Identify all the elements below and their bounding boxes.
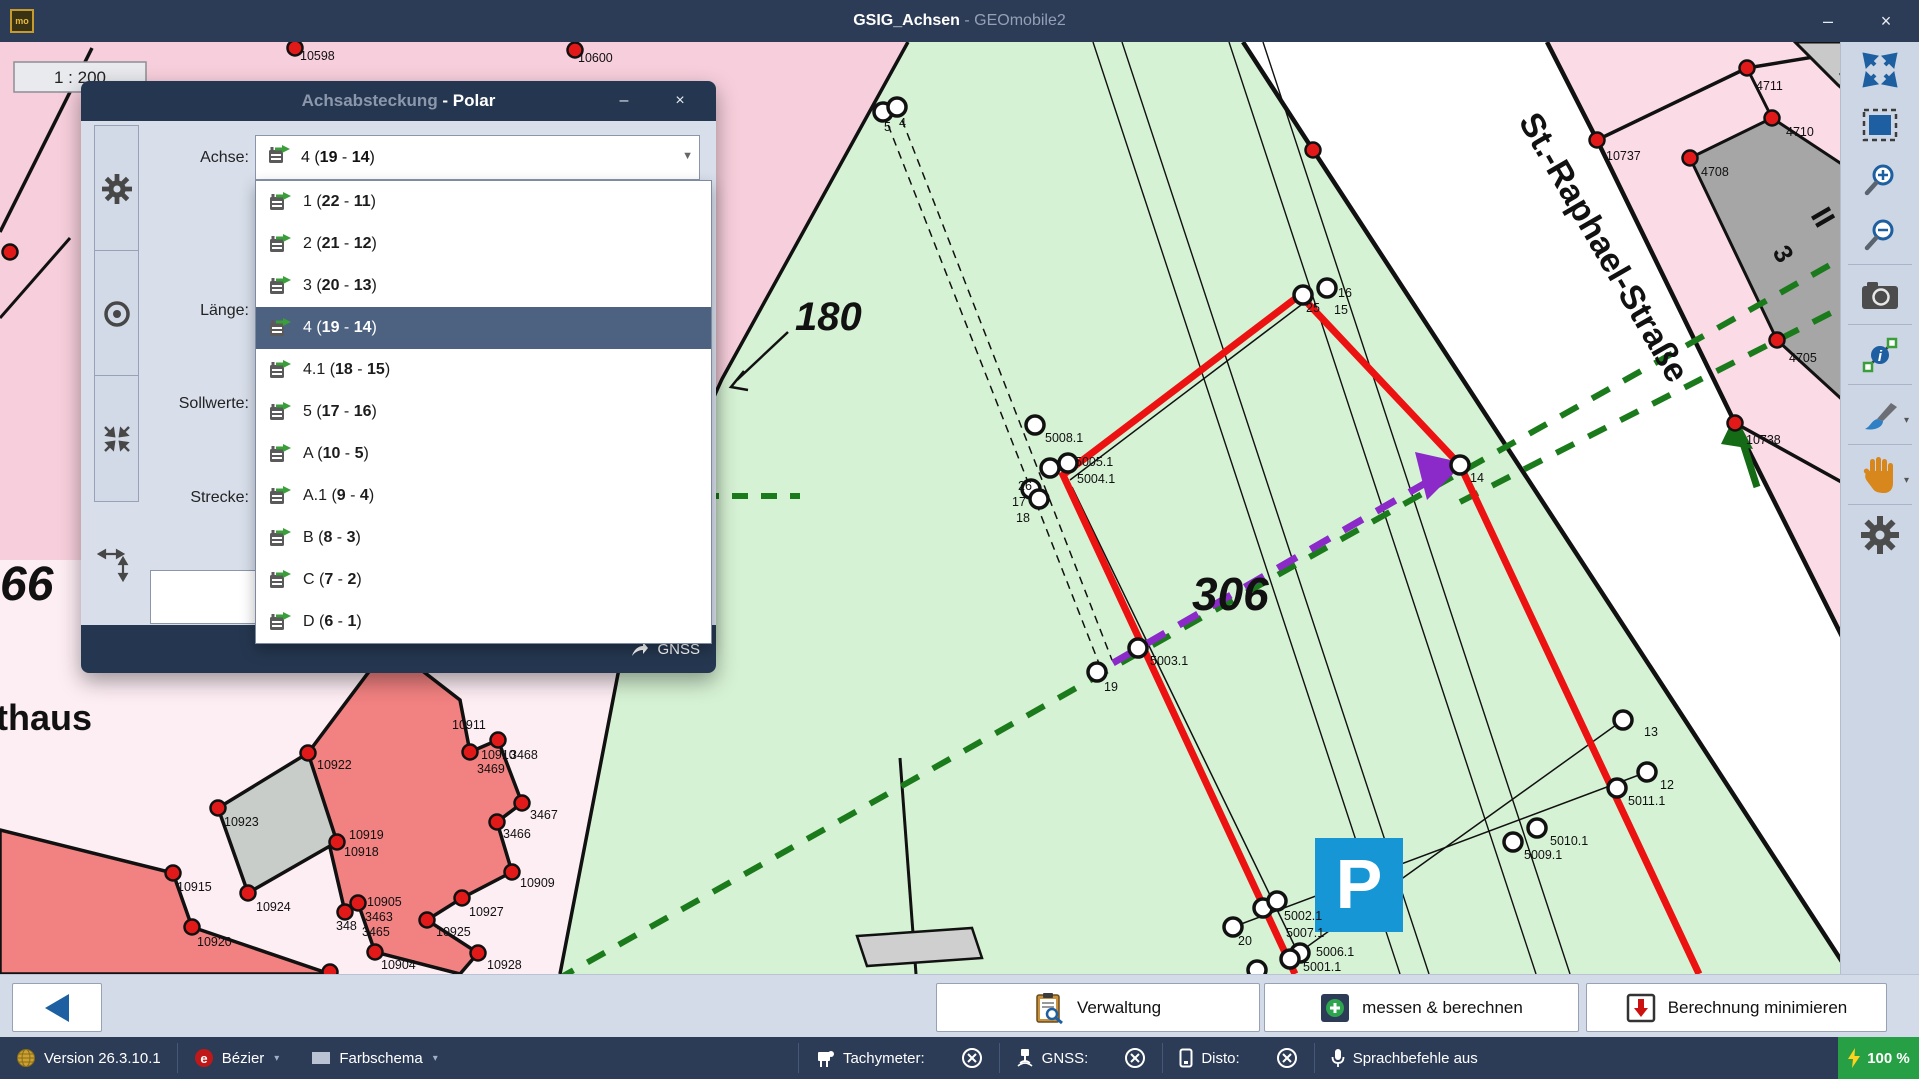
map-point-white[interactable] <box>1268 892 1286 910</box>
map-point-red[interactable] <box>330 835 345 850</box>
selection-rectangle-icon <box>1862 108 1898 142</box>
map-point-red[interactable] <box>463 745 478 760</box>
map-point-red[interactable] <box>455 891 470 906</box>
window-minimize-button[interactable]: – <box>1805 0 1851 42</box>
pan-dropdown-caret: ▾ <box>1904 475 1909 486</box>
axis-icon <box>269 360 292 380</box>
camera-icon <box>1861 280 1899 310</box>
map-point-label: 3463 <box>365 910 393 924</box>
disto-label: Disto: <box>1201 1050 1239 1067</box>
dialog-settings-button[interactable] <box>94 125 139 252</box>
map-point-label: 20 <box>1238 934 1252 948</box>
axis-icon <box>269 444 292 464</box>
achse-combobox[interactable]: 4 (19 - 14) ▼ <box>255 135 700 180</box>
map-point-label: 10737 <box>1606 149 1641 163</box>
map-point-red[interactable] <box>1740 61 1755 76</box>
map-point-red[interactable] <box>491 733 506 748</box>
map-point-label: 12 <box>1660 778 1674 792</box>
style-brush-button[interactable]: ▾ <box>1841 387 1919 442</box>
element-info-icon: i <box>1862 337 1898 373</box>
farbschema-icon <box>311 1050 331 1066</box>
map-point-label: 10925 <box>436 925 471 939</box>
disconnected-icon <box>1276 1047 1298 1069</box>
map-point-white[interactable] <box>1451 456 1469 474</box>
title-bar: mo GSIG_Achsen - GEOmobile2 – × <box>0 0 1919 42</box>
map-point-label: 3467 <box>530 808 558 822</box>
achse-label: Achse: <box>89 149 249 167</box>
voice-commands-label: Sprachbefehle aus <box>1353 1050 1478 1067</box>
combobox-dropdown-icon[interactable]: ▼ <box>682 150 693 162</box>
map-point-white[interactable] <box>1030 490 1048 508</box>
clipboard-search-icon <box>1035 992 1065 1024</box>
map-point-label: 5008.1 <box>1045 431 1083 445</box>
map-point-label: 10922 <box>317 758 352 772</box>
window-close-button[interactable]: × <box>1863 0 1909 42</box>
map-point-red[interactable] <box>185 920 200 935</box>
screenshot-button[interactable] <box>1841 267 1919 322</box>
map-point-white[interactable] <box>1638 763 1656 781</box>
bezier-menu[interactable]: e Bézier ▾ <box>178 1045 296 1071</box>
map-point-label: 19 <box>1104 680 1118 694</box>
map-point-label: 10904 <box>381 958 416 972</box>
map-point-red[interactable] <box>241 886 256 901</box>
map-point-white[interactable] <box>1248 961 1266 974</box>
map-point-white[interactable] <box>1608 779 1626 797</box>
dropdown-item-label: 4 (19 - 14) <box>303 319 377 337</box>
map-point-label: 18 <box>1016 511 1030 525</box>
strecke-label: Strecke: <box>89 489 249 507</box>
map-point-label: 5006.1 <box>1316 945 1354 959</box>
map-toolbar: i ▾ ▾ <box>1840 42 1919 974</box>
map-point-label: 15 <box>1334 303 1348 317</box>
achse-dropdown-list: 1 (22 - 11)2 (21 - 12)3 (20 - 13)4 (19 -… <box>255 180 712 644</box>
swap-axes-icon <box>97 546 133 582</box>
disconnected-icon <box>961 1047 983 1069</box>
zoom-extents-icon <box>1862 52 1898 88</box>
map-point-red[interactable] <box>323 965 338 975</box>
brush-icon <box>1861 399 1899 431</box>
map-point-label: 4 <box>899 116 906 130</box>
map-point-label: 10598 <box>300 49 335 63</box>
power-bolt-icon <box>1847 1048 1861 1068</box>
bezier-caret-icon: ▾ <box>274 1053 279 1064</box>
map-point-label: 4708 <box>1701 165 1729 179</box>
dialog-title-bar[interactable]: Achsabsteckung - Polar – × <box>81 81 716 121</box>
verwaltung-button[interactable]: Verwaltung <box>936 983 1260 1032</box>
map-point-white[interactable] <box>1026 416 1044 434</box>
axis-icon <box>268 145 291 165</box>
map-point-white[interactable] <box>1281 950 1299 968</box>
map-point-red[interactable] <box>3 245 18 260</box>
element-info-button[interactable]: i <box>1841 327 1919 382</box>
map-point-red[interactable] <box>1306 143 1321 158</box>
dropdown-item-C[interactable]: C (7 - 2) <box>256 559 711 601</box>
gnss-label: GNSS: <box>1042 1050 1089 1067</box>
zoom-out-button[interactable] <box>1841 207 1919 262</box>
map-point-white[interactable] <box>1528 819 1546 837</box>
application-window: P 180 306 66 thaus St.-Raphael-Straße II… <box>0 0 1919 1079</box>
gear-icon <box>102 174 132 204</box>
disto-device-icon <box>1179 1048 1193 1068</box>
map-point-red[interactable] <box>515 796 530 811</box>
axis-icon <box>269 570 292 590</box>
battery-status: 100 % <box>1838 1037 1919 1079</box>
map-point-red[interactable] <box>420 913 435 928</box>
dropdown-item-label: 5 (17 - 16) <box>303 403 377 421</box>
map-point-label: 5004.1 <box>1077 472 1115 486</box>
achse-combobox-value: 4 (19 - 14) <box>301 149 375 167</box>
map-point-label: 10909 <box>520 876 555 890</box>
map-point-label: 10600 <box>578 51 613 65</box>
axis-icon <box>269 528 292 548</box>
bezier-icon: e <box>194 1048 214 1068</box>
gnss-antenna-icon <box>1016 1048 1034 1068</box>
window-title: GSIG_Achsen - GEOmobile2 <box>0 12 1919 30</box>
map-point-red[interactable] <box>338 905 353 920</box>
map-point-red[interactable] <box>505 865 520 880</box>
dropdown-item-label: 3 (20 - 13) <box>303 277 377 295</box>
map-point-label: 5009.1 <box>1524 848 1562 862</box>
dropdown-item-A[interactable]: A (10 - 5) <box>256 433 711 475</box>
map-point-label: 3469 <box>477 762 505 776</box>
map-point-label: 4711 <box>1756 79 1783 93</box>
farbschema-menu[interactable]: Farbschema ▾ <box>295 1045 453 1071</box>
laenge-label: Länge: <box>89 302 249 320</box>
toolbar-separator <box>1848 264 1912 265</box>
dropdown-item-label: A.1 (9 - 4) <box>303 487 374 505</box>
map-point-label: 10915 <box>177 880 212 894</box>
map-point-red[interactable] <box>1728 416 1743 431</box>
map-point-white[interactable] <box>1504 833 1522 851</box>
dropdown-item-4[interactable]: 4 (19 - 14) <box>256 307 711 349</box>
map-point-label: 10928 <box>487 958 522 972</box>
map-point-red[interactable] <box>166 866 181 881</box>
map-point-label: 16 <box>1338 286 1352 300</box>
map-point-label: 17 <box>1012 495 1026 509</box>
map-point-label: 5007.1 <box>1286 926 1324 940</box>
berechnung-minimieren-button[interactable]: Berechnung minimieren <box>1586 983 1887 1032</box>
map-point-red[interactable] <box>471 946 486 961</box>
map-point-label: 4710 <box>1786 125 1814 139</box>
map-point-label: 10911 <box>452 718 486 732</box>
dropdown-item-1[interactable]: 1 (22 - 11) <box>256 181 711 223</box>
map-point-label: 5003.1 <box>1150 654 1188 668</box>
toolbar-separator <box>1848 504 1912 505</box>
pan-hand-icon <box>1863 457 1897 493</box>
axis-icon <box>269 192 292 212</box>
dialog-swap-axes-button[interactable] <box>97 546 133 587</box>
map-settings-button[interactable] <box>1841 507 1919 562</box>
tachymeter-icon <box>815 1048 835 1068</box>
dialog-title-mode: - Polar <box>438 91 496 111</box>
map-point-white[interactable] <box>1129 639 1147 657</box>
dropdown-item-3[interactable]: 3 (20 - 13) <box>256 265 711 307</box>
map-point-white[interactable] <box>888 98 906 116</box>
dropdown-item-B[interactable]: B (8 - 3) <box>256 517 711 559</box>
map-point-red[interactable] <box>1590 133 1605 148</box>
map-point-label: 10927 <box>469 905 504 919</box>
dropdown-item-label: 2 (21 - 12) <box>303 235 377 253</box>
map-point-label: 10923 <box>224 815 259 829</box>
map-point-label: 10905 <box>367 895 402 909</box>
dropdown-item-label: A (10 - 5) <box>303 445 369 463</box>
map-point-label: 3465 <box>362 925 390 939</box>
map-point-label: 348 <box>336 919 357 933</box>
dropdown-item-label: 4.1 (18 - 15) <box>303 361 390 379</box>
map-point-label: 26 <box>1018 479 1032 493</box>
map-point-label: 10919 <box>349 828 384 842</box>
dialog-close-button[interactable]: × <box>658 81 702 121</box>
messen-berechnen-label: messen & berechnen <box>1362 998 1523 1018</box>
map-point-label: 10924 <box>256 900 291 914</box>
toolbar-separator <box>1848 384 1912 385</box>
map-point-white[interactable] <box>1041 459 1059 477</box>
map-point-label: 3466 <box>503 827 531 841</box>
dropdown-item-label: 1 (22 - 11) <box>303 193 376 211</box>
map-point-label: 5005.1 <box>1075 455 1113 469</box>
disto-status[interactable]: Disto: <box>1163 1045 1313 1071</box>
gear-icon <box>1861 516 1899 554</box>
axis-icon <box>269 486 292 506</box>
farbschema-caret-icon: ▾ <box>433 1053 438 1064</box>
app-name: - GEOmobile2 <box>960 12 1066 29</box>
collapse-arrows-icon <box>102 424 132 454</box>
gnss-status[interactable]: GNSS: <box>1000 1045 1163 1071</box>
dropdown-item-5[interactable]: 5 (17 - 16) <box>256 391 711 433</box>
zoom-in-button[interactable] <box>1841 152 1919 207</box>
dropdown-item-A.1[interactable]: A.1 (9 - 4) <box>256 475 711 517</box>
map-point-label: 10920 <box>197 935 232 949</box>
farbschema-label: Farbschema <box>339 1050 422 1067</box>
parcel-number-180: 180 <box>795 295 862 339</box>
map-point-label: 10738 <box>1746 433 1781 447</box>
version-info: Version 26.3.10.1 <box>0 1045 177 1071</box>
map-point-red[interactable] <box>211 801 226 816</box>
map-point-white[interactable] <box>1614 711 1632 729</box>
dialog-minimize-button[interactable]: – <box>602 81 646 121</box>
dialog-title: Achsabsteckung <box>302 91 438 111</box>
version-label: Version 26.3.10.1 <box>44 1050 161 1067</box>
verwaltung-label: Verwaltung <box>1077 998 1161 1018</box>
pan-hand-button[interactable]: ▾ <box>1841 447 1919 502</box>
axis-icon <box>269 318 292 338</box>
map-point-red[interactable] <box>1770 333 1785 348</box>
map-point-label: 3468 <box>510 748 538 762</box>
parking-letter: P <box>1336 845 1383 923</box>
dropdown-item-4.1[interactable]: 4.1 (18 - 15) <box>256 349 711 391</box>
back-button[interactable] <box>12 983 102 1032</box>
berechnung-minimieren-label: Berechnung minimieren <box>1668 998 1848 1018</box>
sollwerte-label: Sollwerte: <box>89 395 249 413</box>
toolbar-separator <box>1848 444 1912 445</box>
status-bar: Version 26.3.10.1 e Bézier ▾ Farbschema … <box>0 1037 1919 1079</box>
achsabsteckung-dialog: Achsabsteckung - Polar – × <box>81 81 716 673</box>
map-point-label: 5011.1 <box>1628 794 1665 808</box>
back-arrow-icon <box>45 994 69 1022</box>
zoom-extents-button[interactable] <box>1841 42 1919 97</box>
zoom-out-icon <box>1862 217 1898 253</box>
brush-dropdown-caret: ▾ <box>1904 415 1909 426</box>
axis-icon <box>269 402 292 422</box>
globe-icon <box>16 1048 36 1068</box>
map-point-label: 13 <box>1644 725 1658 739</box>
toolbar-separator <box>1848 324 1912 325</box>
dropdown-item-D[interactable]: D (6 - 1) <box>256 601 711 643</box>
map-point-label: 10918 <box>344 845 379 859</box>
map-point-label: 14 <box>1470 471 1484 485</box>
tachymeter-label: Tachymeter: <box>843 1050 925 1067</box>
map-point-label: 4705 <box>1789 351 1817 365</box>
map-point-red[interactable] <box>1765 111 1780 126</box>
disconnected-icon <box>1124 1047 1146 1069</box>
parcel-number-306: 306 <box>1192 568 1269 620</box>
map-point-label: 5010.1 <box>1550 834 1588 848</box>
battery-percent: 100 % <box>1867 1050 1910 1067</box>
dropdown-item-label: C (7 - 2) <box>303 571 362 589</box>
map-point-label: 5002.1 <box>1284 909 1322 923</box>
add-measure-icon <box>1320 993 1350 1023</box>
zoom-in-icon <box>1862 162 1898 198</box>
building-gray-strip <box>857 928 982 966</box>
svg-text:e: e <box>200 1051 207 1066</box>
minimize-calculation-icon <box>1626 993 1656 1023</box>
axis-icon <box>269 234 292 254</box>
voice-commands-status[interactable]: Sprachbefehle aus <box>1315 1045 1494 1071</box>
map-point-label: 5001.1 <box>1303 960 1341 974</box>
map-point-label: 25 <box>1306 301 1320 315</box>
map-point-red[interactable] <box>301 746 316 761</box>
map-point-white[interactable] <box>1088 663 1106 681</box>
dropdown-item-label: B (8 - 3) <box>303 529 361 547</box>
dropdown-item-2[interactable]: 2 (21 - 12) <box>256 223 711 265</box>
axis-icon <box>268 145 291 170</box>
microphone-icon <box>1331 1048 1345 1068</box>
project-name: GSIG_Achsen <box>853 12 960 29</box>
tachymeter-status[interactable]: Tachymeter: <box>799 1045 999 1071</box>
map-point-red[interactable] <box>1683 151 1698 166</box>
axis-icon <box>269 276 292 296</box>
building-name-rathaus: thaus <box>0 697 92 738</box>
dropdown-item-label: D (6 - 1) <box>303 613 362 631</box>
map-point-label: 5 <box>884 120 891 134</box>
messen-berechnen-button[interactable]: messen & berechnen <box>1264 983 1579 1032</box>
axis-icon <box>269 612 292 632</box>
bottom-action-bar: Verwaltung messen & berechnen Berechnung… <box>0 974 1919 1038</box>
parcel-number-66: 66 <box>0 558 54 611</box>
bezier-label: Bézier <box>222 1050 265 1067</box>
map-point-white[interactable] <box>1318 279 1336 297</box>
selection-rectangle-button[interactable] <box>1841 97 1919 152</box>
